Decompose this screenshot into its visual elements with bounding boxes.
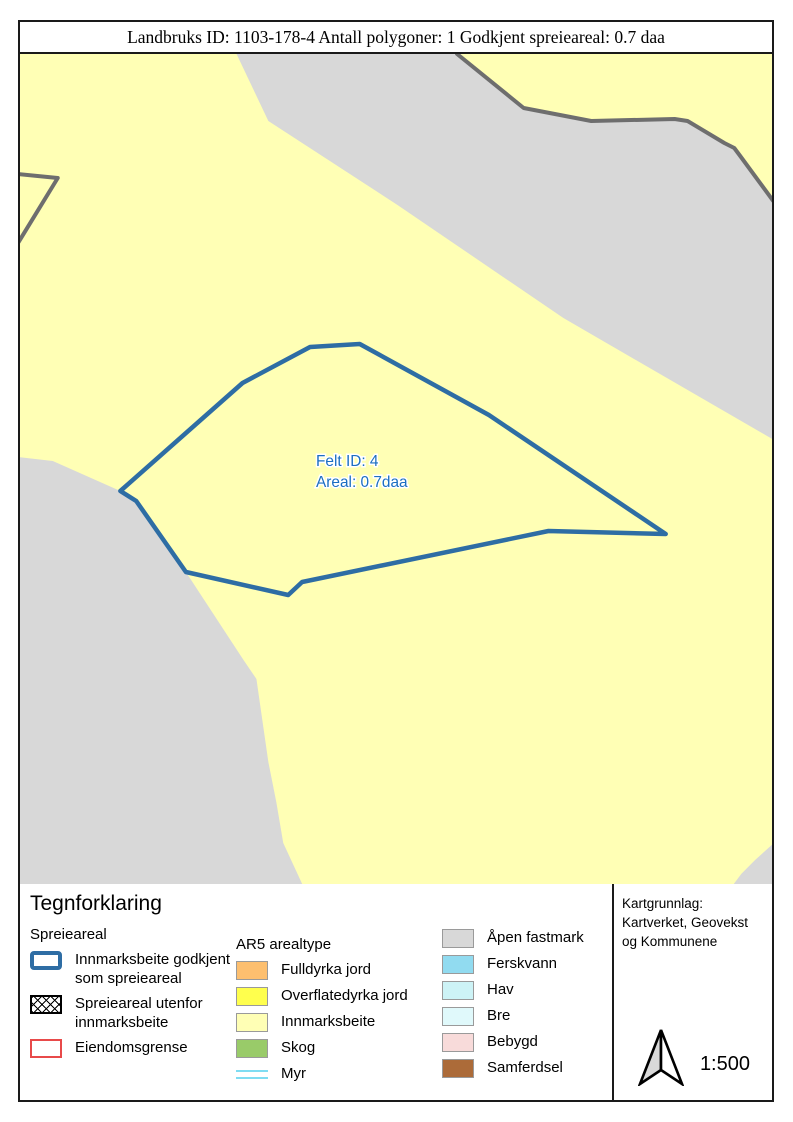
map-canvas: Felt ID: 4Areal: 0.7daa	[20, 54, 772, 884]
legend-symbol-swatch	[236, 987, 268, 1006]
legend-item-label: Åpen fastmark	[487, 928, 584, 947]
legend-item-label: Ferskvann	[487, 954, 557, 973]
legend-symbol-myr	[236, 1065, 268, 1084]
legend-item-label: Bebygd	[487, 1032, 538, 1051]
legend-column-spreieareal: SpreiearealInnmarksbeite godkjent som sp…	[30, 926, 240, 1064]
basemap-credit-line: Kartgrunnlag:	[622, 894, 764, 913]
legend-symbol-outline-red	[30, 1039, 62, 1058]
legend-item-label: Innmarksbeite	[281, 1012, 375, 1031]
legend-item-label: Myr	[281, 1064, 306, 1083]
legend-item: Innmarksbeite	[236, 1012, 446, 1032]
legend-item: Myr	[236, 1064, 446, 1084]
legend-symbol-swatch	[236, 1013, 268, 1032]
title-bar: Landbruks ID: 1103-178-4 Antall polygone…	[20, 22, 772, 54]
north-arrow-icon	[638, 1028, 684, 1086]
legend-group-heading: Spreieareal	[30, 926, 240, 943]
basemap-credit-line: og Kommunene	[622, 932, 764, 951]
legend-item-label: Bre	[487, 1006, 510, 1025]
legend-item: Overflatedyrka jord	[236, 986, 446, 1006]
legend-symbol-swatch	[236, 961, 268, 980]
map-title: Landbruks ID: 1103-178-4 Antall polygone…	[127, 27, 665, 48]
legend-symbol-swatch	[442, 955, 474, 974]
legend-symbol-swatch	[442, 929, 474, 948]
legend-item-label: Fulldyrka jord	[281, 960, 371, 979]
legend-column-ar5: AR5 arealtypeFulldyrka jordOverflatedyrk…	[236, 936, 446, 1090]
legend-symbol-swatch	[442, 1059, 474, 1078]
legend-item-label: Hav	[487, 980, 514, 999]
legend-item: Samferdsel	[442, 1058, 612, 1078]
legend-item-label: Skog	[281, 1038, 315, 1057]
legend-group-heading: AR5 arealtype	[236, 936, 446, 953]
legend-item: Eiendomsgrense	[30, 1038, 240, 1058]
legend-item-label: Spreieareal utenfor innmarksbeite	[75, 994, 203, 1032]
legend-item: Åpen fastmark	[442, 928, 612, 948]
legend-item-label: Innmarksbeite godkjent som spreieareal	[75, 950, 230, 988]
legend-title: Tegnforklaring	[30, 892, 162, 916]
legend-item: Bebygd	[442, 1032, 612, 1052]
legend-symbol-swatch	[442, 1033, 474, 1052]
legend-item: Skog	[236, 1038, 446, 1058]
legend-item: Ferskvann	[442, 954, 612, 974]
legend-symbol-crosshatch	[30, 995, 62, 1014]
scale-label: 1:500	[700, 1053, 750, 1076]
legend-item-label: Eiendomsgrense	[75, 1038, 188, 1057]
legend-area: Tegnforklaring SpreiearealInnmarksbeite …	[20, 884, 772, 1100]
legend-item: Fulldyrka jord	[236, 960, 446, 980]
legend-symbol-swatch	[442, 981, 474, 1000]
basemap-credit-line: Kartverket, Geovekst	[622, 913, 764, 932]
legend-panel: Tegnforklaring SpreiearealInnmarksbeite …	[20, 884, 612, 1100]
legend-item: Bre	[442, 1006, 612, 1026]
legend-symbol-swatch	[236, 1039, 268, 1058]
report-frame: Landbruks ID: 1103-178-4 Antall polygone…	[18, 20, 774, 1102]
legend-item-label: Overflatedyrka jord	[281, 986, 408, 1005]
legend-column-ar5-right: Åpen fastmarkFerskvannHavBreBebygdSamfer…	[442, 928, 612, 1084]
legend-item: Hav	[442, 980, 612, 1000]
legend-symbol-swatch	[442, 1007, 474, 1026]
legend-item: Spreieareal utenfor innmarksbeite	[30, 994, 240, 1032]
legend-item: Innmarksbeite godkjent som spreieareal	[30, 950, 240, 988]
legend-symbol-outline-blue	[30, 951, 62, 970]
legend-item-label: Samferdsel	[487, 1058, 563, 1077]
map-info-box: Kartgrunnlag: Kartverket, Geovekst og Ko…	[612, 884, 772, 1100]
map-area: Felt ID: 4Areal: 0.7daa	[20, 54, 772, 884]
